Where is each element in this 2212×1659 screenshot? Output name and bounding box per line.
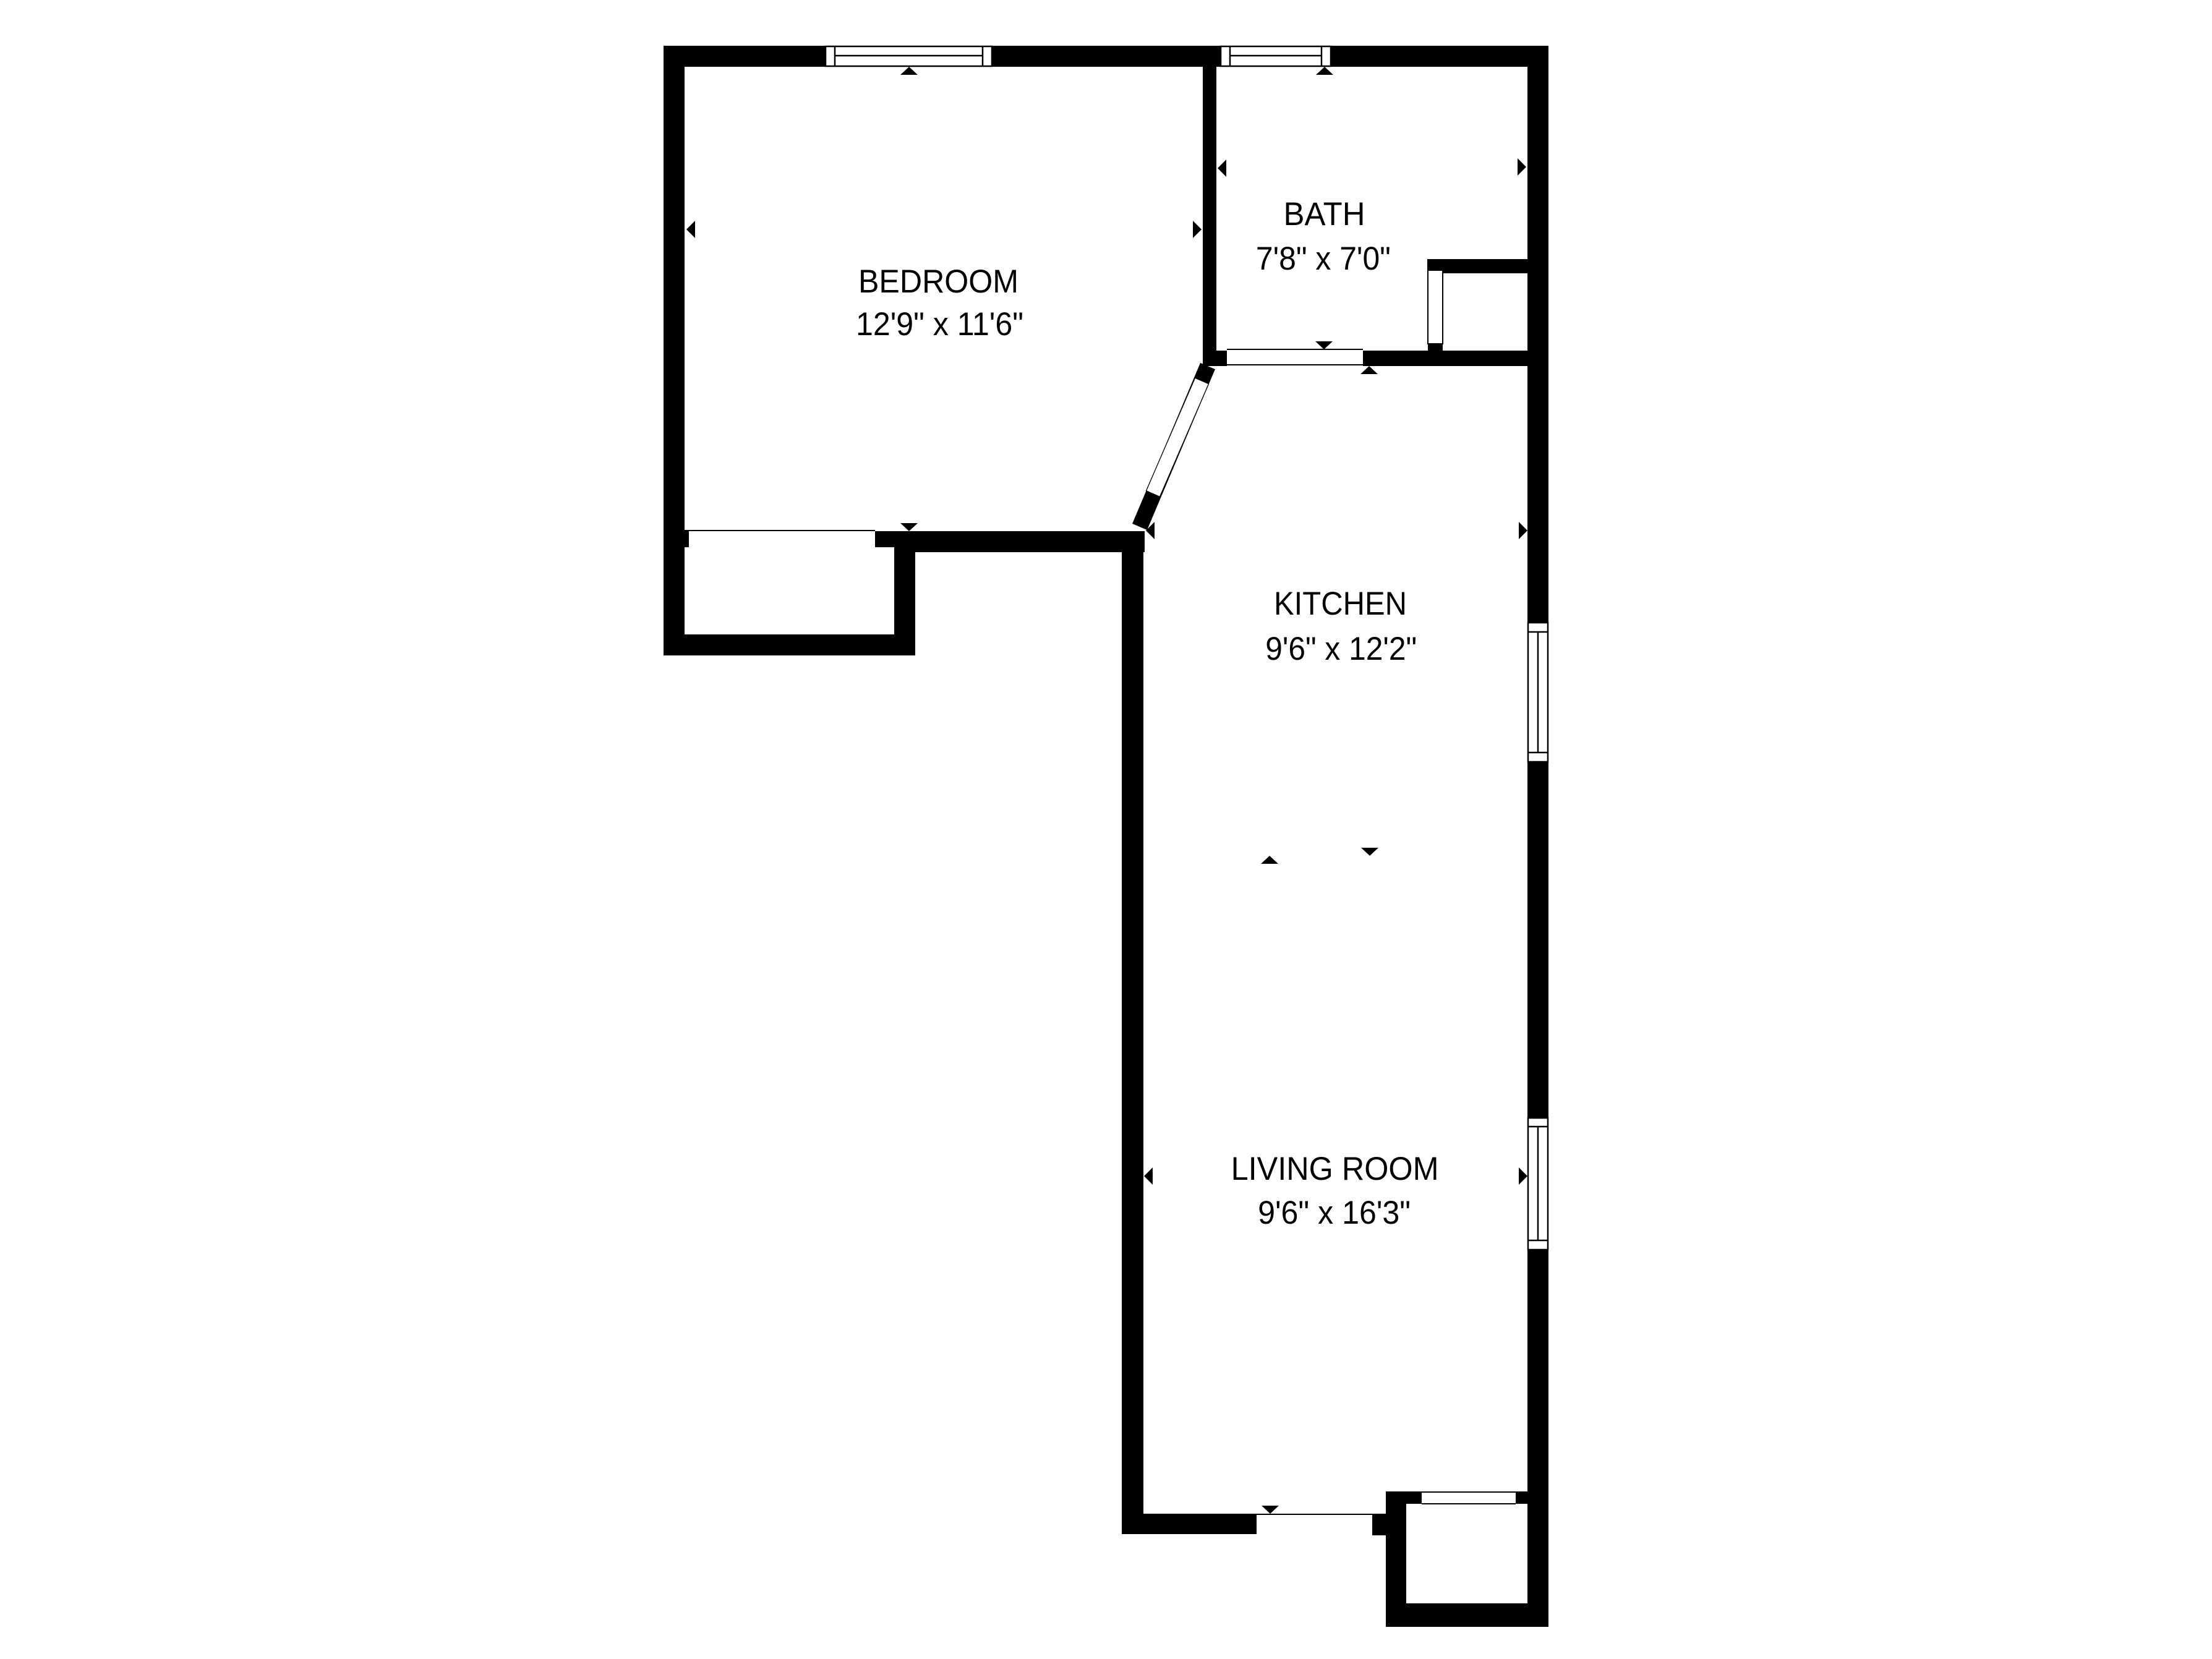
svg-text:BEDROOM: BEDROOM (858, 263, 1018, 300)
svg-text:9'6" x 16'3": 9'6" x 16'3" (1258, 1195, 1411, 1231)
svg-text:7'8" x 7'0": 7'8" x 7'0" (1256, 241, 1391, 277)
svg-text:LIVING ROOM: LIVING ROOM (1231, 1151, 1439, 1187)
svg-text:BATH: BATH (1284, 196, 1365, 232)
svg-text:9'6" x 12'2": 9'6" x 12'2" (1265, 631, 1417, 667)
svg-text:KITCHEN: KITCHEN (1274, 586, 1407, 622)
svg-text:12'9" x 11'6": 12'9" x 11'6" (856, 306, 1023, 343)
